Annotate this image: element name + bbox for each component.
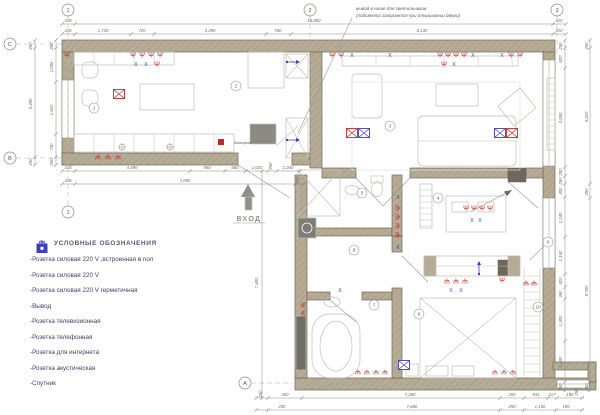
power-socket-symbol: Ψ — [462, 277, 468, 284]
dimension-label: 931 — [532, 392, 540, 397]
svg-text:X: X — [388, 53, 392, 59]
power-socket-symbol: Ψ — [453, 277, 459, 284]
furniture — [296, 316, 306, 370]
power-socket-symbol: Ψ — [396, 232, 403, 238]
legend-item-label: -Вывод — [30, 303, 51, 310]
power-socket-symbol: Ψ — [105, 153, 111, 160]
svg-text:Ψ: Ψ — [396, 232, 403, 238]
svg-text:Ψ: Ψ — [517, 53, 523, 60]
dimension-label: 1,150 — [558, 250, 563, 261]
power-socket-symbol: Ψ — [453, 53, 459, 60]
stool-symbol — [118, 143, 126, 151]
satellite-icon: C — [35, 240, 49, 254]
power-socket-symbol: Ψ — [130, 53, 136, 60]
legend-item-socket: -Розетка силовая 220 V — [30, 268, 280, 284]
power-socket-symbol: Ψ — [445, 53, 451, 60]
room-number: 10 — [535, 305, 541, 310]
dimension-label: 400 — [281, 392, 289, 397]
dimension-label: 250 — [558, 383, 563, 392]
dimension-label: 1,680 — [558, 356, 563, 367]
svg-text:Ψ: Ψ — [64, 53, 70, 60]
furniture — [371, 176, 383, 183]
wall — [410, 168, 508, 178]
dimension-label: 8,130 — [417, 28, 428, 33]
dimension-label: 1,050 — [49, 61, 54, 72]
furniture — [250, 124, 276, 144]
dimension-label: 1,610 — [49, 104, 54, 115]
furniture — [82, 62, 98, 78]
svg-text:X: X — [144, 62, 148, 68]
dimension-label: 360 — [558, 290, 563, 298]
furniture — [426, 366, 448, 376]
svg-text:X: X — [449, 288, 453, 294]
power-socket-symbol: Ψ — [531, 279, 537, 286]
floor-socket-box-symbol — [347, 129, 358, 138]
furniture — [436, 84, 478, 106]
power-socket-symbol: Ψ — [463, 206, 469, 213]
legend-item-label: -Спутник — [30, 380, 56, 387]
spur-arrow-symbol — [286, 138, 300, 142]
floor-socket-box-symbol — [114, 90, 125, 99]
svg-text:Ψ: Ψ — [105, 153, 111, 160]
legend-item-label: -Розетка телефонная — [30, 334, 92, 341]
outlet-x-symbol: X — [478, 218, 482, 224]
outlet-x-symbol: X — [396, 195, 400, 201]
svg-text:Ψ: Ψ — [396, 223, 403, 229]
svg-text:C: C — [41, 240, 44, 244]
power-socket-symbol: Ψ — [471, 206, 477, 213]
dimension-label: 1,020 — [252, 165, 263, 170]
dimension-label: 418 — [64, 178, 72, 183]
svg-text:X: X — [338, 288, 342, 294]
svg-text:Ψ: Ψ — [463, 206, 469, 213]
grid-axis-label: 1 — [66, 210, 69, 216]
legend-item-label: -Розетка акустическая — [30, 365, 95, 372]
power-socket-symbol: Ψ — [499, 278, 505, 285]
furniture — [320, 321, 352, 371]
furniture — [504, 190, 512, 196]
dimension-label: 16,800 — [307, 18, 321, 23]
legend-items: -Розетка силовая 220 V ,встроенная в пол… — [30, 252, 280, 392]
furniture — [312, 314, 360, 378]
dimension-label: 980 — [203, 165, 211, 170]
dimension-label: 3,080 — [558, 112, 563, 123]
outlet-x-symbol: X — [470, 218, 474, 224]
legend-item-internet: IN-Розетка для интернета — [30, 345, 280, 361]
power-socket-symbol: Ψ — [437, 53, 443, 60]
furniture-line — [276, 126, 298, 146]
wall — [292, 153, 310, 165]
power-socket-symbol: Ψ — [299, 310, 306, 316]
dimension-label: 4,490 — [127, 165, 138, 170]
intercom-symbol — [218, 139, 224, 145]
dimension-label: 280 — [558, 168, 563, 177]
svg-text:Ψ: Ψ — [445, 53, 451, 60]
svg-text:X: X — [478, 218, 482, 224]
dimension-label: 3,490 — [205, 28, 216, 33]
legend-item-label: -Розетка телевизионная — [30, 318, 101, 325]
outlet-x-symbol: X — [471, 53, 475, 59]
furniture — [498, 88, 536, 126]
outlet-x-symbol: X — [449, 288, 453, 294]
spur-arrow-symbol — [286, 60, 300, 64]
legend-item-satellite: C-Спутник — [30, 376, 280, 392]
svg-text:Ψ: Ψ — [501, 368, 507, 375]
svg-text:Ψ: Ψ — [437, 53, 443, 60]
dimension-label: 190 — [562, 404, 570, 409]
legend-item-audio: A-Розетка акустическая — [30, 361, 280, 377]
power-socket-symbol: Ψ — [329, 53, 335, 60]
dimension-label: 250 — [49, 42, 54, 51]
power-socket-symbol: Ψ — [364, 368, 370, 375]
legend-item-floor-socket: -Розетка силовая 220 V ,встроенная в пол — [30, 252, 280, 268]
svg-text:X: X — [396, 245, 400, 251]
furniture — [245, 197, 252, 210]
door-or-leader-line — [508, 182, 538, 208]
outlet-x-symbol: X — [452, 62, 456, 68]
dimension-label: 410 — [555, 18, 563, 23]
dimension-label: 620 — [558, 55, 563, 63]
wall — [310, 52, 322, 168]
dimension-label: 720 — [138, 28, 146, 33]
dimension-label: 4,420 — [584, 111, 589, 122]
door-or-leader-line — [330, 300, 356, 322]
spur-arrow-symbol — [477, 261, 481, 275]
outlet-x-symbol: X — [388, 53, 392, 59]
power-socket-symbol: Ψ — [64, 53, 70, 60]
svg-text:Ψ: Ψ — [453, 277, 459, 284]
outlet-x-symbol: X — [350, 53, 354, 59]
dimension-label: 250 — [507, 404, 516, 409]
wall — [295, 378, 596, 390]
furniture — [342, 56, 518, 66]
svg-text:Ψ: Ψ — [441, 62, 447, 69]
legend-item-tv: TV-Розетка телевизионная — [30, 314, 280, 330]
dimension-label: 250 — [507, 392, 516, 397]
svg-text:Ψ: Ψ — [382, 368, 388, 375]
svg-text:Ψ: Ψ — [462, 277, 468, 284]
power-socket-symbol: Ψ — [487, 206, 493, 213]
power-socket-symbol: Ψ — [396, 214, 403, 220]
legend-item-label: -Розетка силовая 220 V герметичная — [30, 287, 138, 294]
svg-text:X: X — [459, 288, 463, 294]
furniture — [508, 256, 520, 276]
furniture — [372, 182, 383, 197]
svg-text:Ψ: Ψ — [299, 302, 306, 308]
power-socket-symbol: Ψ — [95, 153, 101, 160]
annotation-text: ВХОД — [237, 216, 262, 223]
legend-item-label: -Розетка для интернета — [30, 349, 99, 356]
svg-text:Ψ: Ψ — [479, 206, 485, 213]
annotation-text: вывод в нише для светильников — [356, 6, 427, 11]
outlet-x-symbol: X — [144, 62, 148, 68]
dimension-label: 250 — [28, 158, 33, 167]
power-socket-symbol: Ψ — [396, 205, 403, 211]
dimension-label: 250 — [584, 42, 589, 51]
svg-text:Ψ: Ψ — [523, 279, 529, 286]
dimension-label: 250 — [584, 383, 589, 392]
dimension-label: 250 — [558, 177, 563, 186]
room-number: 2 — [234, 84, 238, 89]
dimension-label: 418 — [64, 18, 72, 23]
legend-title: УСЛОВНЫЕ ОБОЗНАЧЕНИЯ — [54, 240, 280, 247]
svg-text:Ψ: Ψ — [487, 206, 493, 213]
svg-text:Ψ: Ψ — [154, 62, 160, 69]
svg-text:Ψ: Ψ — [115, 153, 121, 160]
floor-socket-box-symbol — [399, 361, 410, 370]
stool-symbol — [166, 143, 174, 151]
dimension-label: 250 — [584, 188, 589, 197]
furniture — [140, 84, 194, 110]
power-socket-symbol: Ψ — [396, 223, 403, 229]
svg-text:Ψ: Ψ — [453, 53, 459, 60]
power-socket-symbol: Ψ — [461, 53, 467, 60]
furniture — [424, 256, 436, 276]
floor-plan-drawing: 41816,8004104181,7307203,4907808,1304102… — [0, 0, 600, 415]
grid-axis-label: B — [8, 156, 12, 162]
dimension-label: 250 — [295, 176, 300, 185]
legend-item-label: -Розетка силовая 220 V ,встроенная в пол — [30, 256, 153, 263]
svg-text:Ψ: Ψ — [299, 310, 306, 316]
annotation-text: (подсветка загорается при открывании две… — [356, 13, 461, 18]
svg-text:X: X — [452, 62, 456, 68]
svg-text:Ψ: Ψ — [531, 279, 537, 286]
power-socket-symbol: Ψ — [508, 53, 514, 60]
power-socket-symbol: Ψ — [444, 277, 450, 284]
dimension-label: 1,300 — [558, 315, 563, 326]
power-socket-symbol: Ψ — [148, 53, 154, 60]
svg-text:X: X — [396, 195, 400, 201]
svg-text:Ψ: Ψ — [396, 205, 403, 211]
legend-item-spur: -Вывод — [30, 299, 280, 315]
dimension-label: 418 — [64, 165, 72, 170]
dimension-label: 8,780 — [584, 285, 589, 296]
door-or-leader-line — [530, 246, 544, 260]
power-socket-symbol: Ψ — [492, 368, 498, 375]
dimension-label: 217 — [547, 392, 556, 397]
floor-socket-box-symbol — [495, 129, 506, 138]
svg-text:Ψ: Ψ — [148, 53, 154, 60]
legend-item-label: -Розетка силовая 220 V — [30, 272, 99, 279]
furniture — [241, 184, 255, 197]
furniture — [298, 218, 316, 238]
svg-text:Ψ: Ψ — [492, 368, 498, 375]
outlet-x-symbol: X — [396, 245, 400, 251]
svg-text:Ψ: Ψ — [329, 53, 335, 60]
power-socket-symbol: Ψ — [479, 206, 485, 213]
svg-text:Ψ: Ψ — [461, 53, 467, 60]
svg-text:X: X — [500, 53, 504, 59]
power-socket-symbol: Ψ — [382, 368, 388, 375]
outlet-x-symbol: X — [134, 62, 138, 68]
wall — [62, 40, 555, 52]
dimension-label: 780 — [274, 28, 282, 33]
dimension-label: 400 — [558, 187, 563, 195]
svg-text:Ψ: Ψ — [508, 53, 514, 60]
power-socket-symbol: Ψ — [517, 53, 523, 60]
dimension-label: 7,280 — [405, 392, 416, 397]
dimension-label: 400 — [558, 277, 563, 285]
svg-text:X: X — [350, 53, 354, 59]
svg-text:Ψ: Ψ — [95, 153, 101, 160]
grid-axis-label: 1 — [66, 8, 69, 14]
power-socket-symbol: Ψ — [441, 62, 447, 69]
svg-text:Ψ: Ψ — [373, 368, 379, 375]
svg-text:Ψ: Ψ — [364, 368, 370, 375]
floor-socket-box-symbol — [507, 129, 518, 138]
dimension-label: 410 — [555, 28, 563, 33]
power-socket-symbol: Ψ — [139, 53, 145, 60]
power-socket-symbol: Ψ — [157, 53, 163, 60]
annotation-text: домофон — [234, 140, 252, 145]
dimension-label: 250 — [574, 388, 579, 397]
power-socket-symbol: Ψ — [338, 53, 344, 60]
svg-text:X: X — [471, 53, 475, 59]
svg-text:Ψ: Ψ — [510, 368, 516, 375]
svg-text:Ψ: Ψ — [396, 214, 403, 220]
svg-text:Ψ: Ψ — [157, 53, 163, 60]
svg-text:X: X — [470, 218, 474, 224]
dimension-label: 7,890 — [180, 178, 191, 183]
dimension-label: 250 — [558, 42, 563, 51]
dimension-label: 418 — [64, 28, 72, 33]
dimension-label: 1,150 — [535, 404, 546, 409]
wall — [362, 292, 392, 300]
dimension-label: 250 — [28, 42, 33, 51]
furniture — [352, 74, 382, 118]
svg-text:Ψ: Ψ — [355, 368, 361, 375]
outlet-x-symbol: X — [338, 288, 342, 294]
dimension-label: 3,490 — [28, 98, 33, 109]
dimension-label: 250 — [268, 162, 273, 171]
svg-text:Ψ: Ψ — [139, 53, 145, 60]
outlet-x-symbol: X — [459, 288, 463, 294]
svg-text:Ψ: Ψ — [338, 53, 344, 60]
wall — [307, 228, 392, 236]
wall — [62, 153, 238, 165]
svg-text:Ψ: Ψ — [471, 206, 477, 213]
dimension-label: 1,240 — [558, 212, 563, 223]
dimension-label: 680 — [231, 165, 239, 170]
power-socket-symbol: Ψ — [373, 368, 379, 375]
power-socket-symbol: Ψ — [154, 62, 160, 69]
dimension-label: 730 — [49, 143, 54, 151]
power-socket-symbol: Ψ — [510, 368, 516, 375]
furniture — [248, 52, 284, 88]
svg-text:X: X — [134, 62, 138, 68]
svg-text:Ψ: Ψ — [444, 277, 450, 284]
power-socket-symbol: Ψ — [299, 302, 306, 308]
dimension-label: 7,680 — [407, 404, 418, 409]
power-socket-symbol: Ψ — [523, 279, 529, 286]
furniture — [420, 184, 432, 228]
legend: УСЛОВНЫЕ ОБОЗНАЧЕНИЯ -Розетка силовая 22… — [30, 240, 280, 392]
dimension-label: 1,730 — [98, 28, 109, 33]
grid-axis-label: 2 — [308, 8, 311, 14]
grid-axis-label: 3 — [555, 8, 558, 14]
dimension-label: 250 — [277, 404, 286, 409]
outlet-x-symbol: X — [500, 53, 504, 59]
power-socket-symbol: Ψ — [501, 368, 507, 375]
power-socket-symbol: Ψ — [355, 368, 361, 375]
furniture — [446, 196, 506, 232]
legend-item-phone: T-Розетка телефонная — [30, 330, 280, 346]
wall — [307, 292, 330, 300]
dimension-label: 250 — [49, 158, 54, 167]
power-socket-symbol: Ψ — [115, 153, 121, 160]
legend-item-socket-sealed: -Розетка силовая 220 V герметичная — [30, 283, 280, 299]
svg-text:Ψ: Ψ — [499, 278, 505, 285]
floor-socket-box-symbol — [359, 129, 370, 138]
wall — [526, 168, 543, 178]
wall — [322, 168, 356, 178]
furniture — [452, 366, 474, 376]
svg-text:Ψ: Ψ — [130, 53, 136, 60]
dimension-label: 1,040 — [283, 165, 294, 170]
wall — [588, 362, 596, 382]
grid-axis-label: C — [8, 42, 12, 48]
